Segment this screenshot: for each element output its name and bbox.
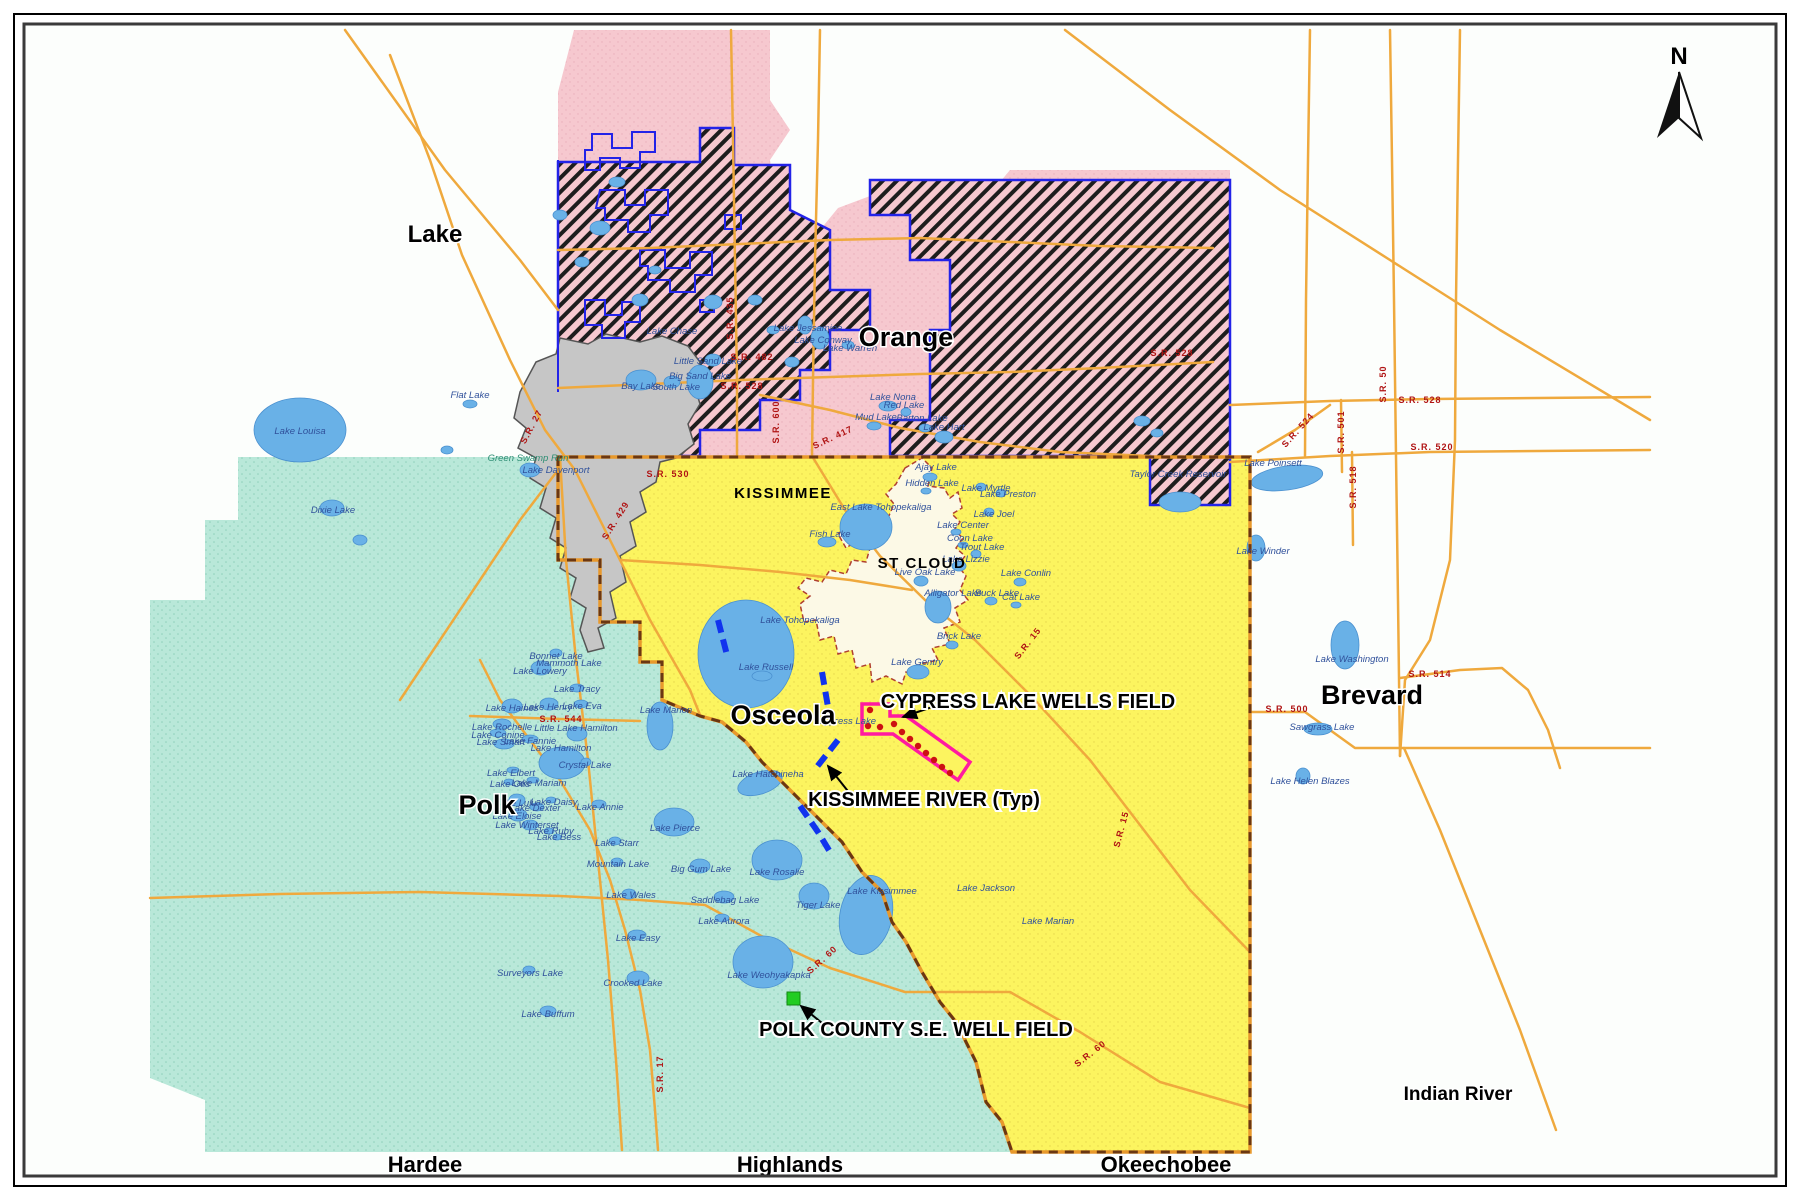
lake-label-lake-russell: Lake Russell: [739, 662, 794, 673]
lake-label-crystal-lake: Crystal Lake: [559, 760, 612, 771]
north-arrow-label: N: [1670, 43, 1687, 70]
county-label-orange: Orange: [859, 322, 954, 352]
road-label-s-r-528: S.R. 528: [1150, 348, 1193, 358]
road-label-s-r-500: S.R. 500: [1265, 704, 1308, 714]
lake-label-lake-jackson: Lake Jackson: [957, 883, 1015, 894]
lake-label-big-gum-lake: Big Gum Lake: [671, 864, 731, 875]
lake-label-lake-eva: Lake Eva: [562, 701, 602, 712]
road-label-s-r-530: S.R. 530: [646, 469, 689, 479]
lake-label-lake-louisa: Lake Louisa: [274, 426, 325, 437]
city-label-kissimmee: KISSIMMEE: [734, 485, 832, 502]
lake-label-lake-hatchineha: Lake Hatchineha: [732, 769, 803, 780]
lake-label-alligator-lake: Alligator Lake: [923, 588, 982, 599]
lake-label-lake-jessamine: Lake Jessamine: [774, 323, 843, 334]
road-label-s-r-482: S.R. 482: [730, 352, 773, 362]
city-label-st-cloud: ST CLOUD: [878, 555, 967, 572]
road-label-s-r-514: S.R. 514: [1408, 669, 1451, 679]
lake-label-lake-annie: Lake Annie: [576, 802, 623, 813]
lake-label-hidden-lake: Hidden Lake: [905, 478, 958, 489]
lake-label-south-lake: South Lake: [652, 382, 700, 393]
green-square-marker: [787, 992, 800, 1005]
county-label-osceola: Osceola: [730, 700, 836, 730]
lake-label-lake-preston: Lake Preston: [980, 489, 1036, 500]
road-label-s-r-17: S.R. 17: [655, 1055, 665, 1092]
lake-label-trout-lake: Trout Lake: [960, 542, 1005, 553]
lake-label-lake-mariam: Lake Mariam: [512, 778, 567, 789]
county-label-brevard: Brevard: [1321, 680, 1423, 710]
lake-label-lake-hart: Lake Hart: [923, 422, 965, 433]
road-label-s-r-600: S.R. 600: [771, 400, 781, 443]
lake-label-lake-buffum: Lake Buffum: [521, 1009, 574, 1020]
lake-label-lake-washington: Lake Washington: [1315, 654, 1388, 665]
lake-label-lake-tohopekaliga: Lake Tohopekaliga: [760, 615, 839, 626]
lake-label-lake-chase: Lake Chase: [647, 326, 698, 337]
lake-label-lake-bess: Lake Bess: [537, 832, 582, 843]
annotation-kissimmee-river-typ-: KISSIMMEE RIVER (Typ): [808, 789, 1040, 811]
lake-label-lake-davenport: Lake Davenport: [522, 465, 589, 476]
lake-label-little-lake-hamilton: Little Lake Hamilton: [534, 723, 617, 734]
lake-label-east-lake-tohopekaliga: East Lake Tohopekaliga: [830, 502, 931, 513]
road-label-s-r-528: S.R. 528: [720, 381, 763, 391]
lake-label-lake-winder: Lake Winder: [1236, 546, 1290, 557]
county-label-okeechobee: Okeechobee: [1101, 1152, 1232, 1177]
lake-label-sawgrass-lake: Sawgrass Lake: [1290, 722, 1355, 733]
road-label-s-r-50: S.R. 50: [1378, 365, 1388, 402]
road-label-s-r-435: S.R. 435: [725, 296, 735, 339]
road-label-s-r-544: S.R. 544: [539, 714, 582, 724]
lake-label-lake-wales: Lake Wales: [606, 890, 656, 901]
county-label-highlands: Highlands: [737, 1152, 843, 1177]
road-label-s-r-528: S.R. 528: [1398, 395, 1441, 405]
lake-label-lake-center: Lake Center: [937, 520, 990, 531]
lake-label-lake-gentry: Lake Gentry: [891, 657, 944, 668]
lake-label-lake-marion: Lake Marion: [640, 705, 692, 716]
lake-label-lake-tracy: Lake Tracy: [554, 684, 602, 695]
lake-label-lake-starr: Lake Starr: [595, 838, 640, 849]
lake-label-taylor-creek-reservoir: Taylor Creek Reservoir: [1130, 469, 1228, 480]
lake-label-dixie-lake: Dixie Lake: [311, 505, 355, 516]
lake-label-mountain-lake: Mountain Lake: [587, 859, 649, 870]
lake-label-flat-lake: Flat Lake: [450, 390, 489, 401]
lake-label-lake-hamilton: Lake Hamilton: [531, 743, 592, 754]
county-label-polk: Polk: [458, 790, 516, 820]
road-label-s-r-518: S.R. 518: [1348, 465, 1358, 508]
map-page: Lake LouisaDixie LakeFlat LakeLake Daven…: [0, 0, 1800, 1200]
lake-label-surveyors-lake: Surveyors Lake: [497, 968, 563, 979]
lake-label-lake-kissimmee: Lake Kissimmee: [847, 886, 917, 897]
county-label-indian-river: Indian River: [1404, 1084, 1513, 1105]
lake-label-mud-lake: Mud Lake: [855, 412, 897, 423]
road-label-s-r-501: S.R. 501: [1336, 410, 1346, 453]
lake-label-lake-helen-blazes: Lake Helen Blazes: [1270, 776, 1349, 787]
lake-label-lake-joel: Lake Joel: [974, 509, 1016, 520]
lake-label-lake-poinsett: Lake Poinsett: [1244, 458, 1302, 469]
lake-label-lake-marian: Lake Marian: [1022, 916, 1074, 927]
lake-label-brick-lake: Brick Lake: [937, 631, 981, 642]
lake-label-lake-easy: Lake Easy: [616, 933, 662, 944]
lake-label-lake-pierce: Lake Pierce: [650, 823, 700, 834]
lake-label-crooked-lake: Crooked Lake: [603, 978, 662, 989]
lake-label-lake-rosalie: Lake Rosalie: [750, 867, 805, 878]
stream-labels-layer: Green Swamp Run: [488, 453, 569, 464]
lake-label-lake-conlin: Lake Conlin: [1001, 568, 1051, 579]
lake-label-red-lake: Red Lake: [884, 400, 925, 411]
county-label-lake: Lake: [408, 221, 463, 248]
lake-label-ajay-lake: Ajay Lake: [914, 462, 957, 473]
lake-label-lake-lowery: Lake Lowery: [513, 666, 568, 677]
lake-label-lake-aurora: Lake Aurora: [698, 916, 749, 927]
annotation-polk-county-s-e-well-field: POLK COUNTY S.E. WELL FIELD: [759, 1019, 1073, 1041]
lake-label-lake-weohyakapka: Lake Weohyakapka: [727, 970, 810, 981]
annotation-cypress-lake-wells-field: CYPRESS LAKE WELLS FIELD: [881, 691, 1175, 713]
county-label-hardee: Hardee: [388, 1152, 463, 1177]
lake-label-fish-lake: Fish Lake: [809, 529, 850, 540]
lake-label-saddlebag-lake: Saddlebag Lake: [691, 895, 760, 906]
map-canvas: Lake LouisaDixie LakeFlat LakeLake Daven…: [0, 0, 1800, 1200]
road-label-s-r-520: S.R. 520: [1410, 442, 1453, 452]
lake-label-cat-lake: Cat Lake: [1002, 592, 1040, 603]
lake-label-tiger-lake: Tiger Lake: [796, 900, 841, 911]
stream-label-green-swamp-run: Green Swamp Run: [488, 453, 569, 464]
